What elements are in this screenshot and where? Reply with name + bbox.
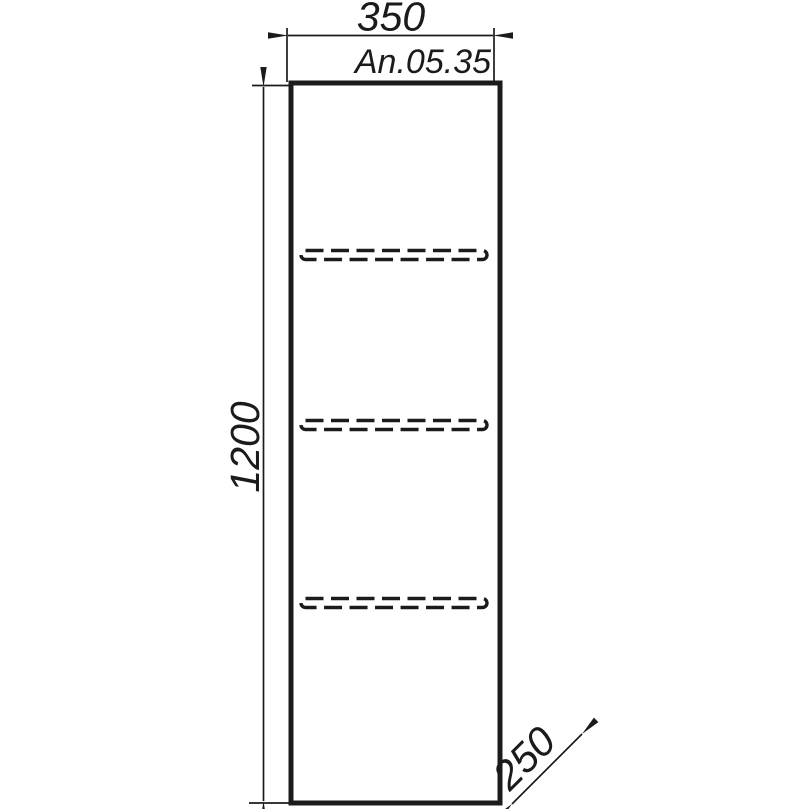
- width-dimension-value: 350: [357, 0, 426, 40]
- technical-drawing: 350 An.05.35 1200 250: [0, 0, 809, 809]
- height-dimension: 1200: [222, 86, 291, 804]
- product-code-label: An.05.35: [353, 43, 491, 81]
- drawing-canvas: 350 An.05.35 1200 250: [0, 0, 809, 809]
- height-dimension-value: 1200: [222, 401, 268, 492]
- cabinet-outline: [291, 83, 500, 803]
